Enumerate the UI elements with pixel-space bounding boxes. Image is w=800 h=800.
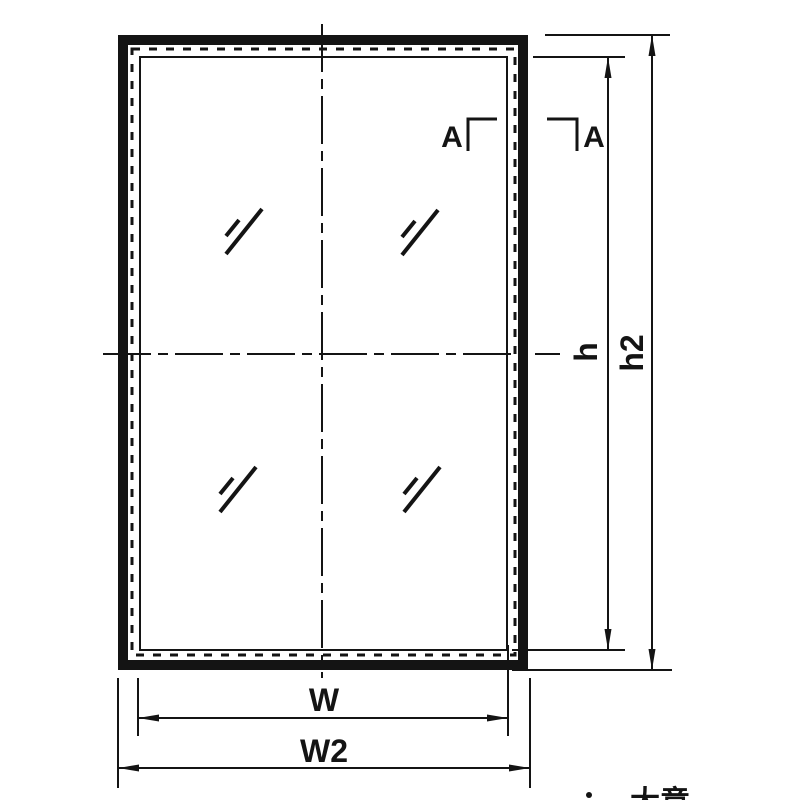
section-mark-right-bracket — [547, 119, 577, 151]
arrow-down-icon — [605, 629, 612, 650]
glass-symbol-bottom-right — [404, 467, 440, 512]
arrow-up-icon — [605, 57, 612, 78]
technical-drawing-canvas: A A h h2 W W2 大意 — [0, 0, 800, 800]
dim-label-h2: h2 — [614, 334, 650, 371]
glass-symbol-bottom-left — [220, 467, 256, 512]
dim-label-h: h — [568, 342, 604, 362]
dimension-h2: h2 — [614, 35, 656, 670]
section-label-right: A — [583, 121, 605, 154]
arrow-left-icon — [138, 715, 159, 722]
window-frame-elevation-drawing: A A h h2 W W2 大意 — [0, 0, 800, 800]
corner-text-fragment: 大意 — [630, 785, 690, 800]
arrow-right-icon — [487, 715, 508, 722]
arrow-left-icon — [118, 765, 139, 772]
glass-symbol-top-left — [226, 209, 262, 254]
section-mark-left-bracket — [468, 119, 497, 151]
dim-label-w: W — [309, 682, 340, 718]
arrow-right-icon — [509, 765, 530, 772]
fragment-dot — [586, 792, 592, 798]
arrow-down-icon — [649, 649, 656, 670]
glass-symbol-top-right — [402, 210, 438, 255]
section-label-left: A — [441, 121, 463, 154]
dimension-w2: W2 — [118, 733, 530, 772]
dimension-w: W — [138, 682, 508, 722]
arrow-up-icon — [649, 35, 656, 56]
dim-label-w2: W2 — [300, 733, 348, 769]
